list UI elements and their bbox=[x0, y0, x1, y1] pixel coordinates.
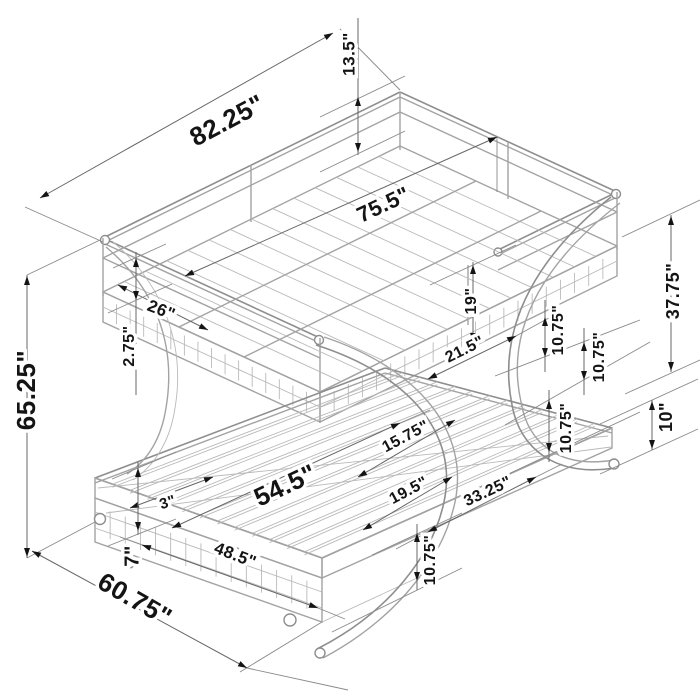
drawing-line bbox=[27, 240, 100, 275]
bed-frame-line bbox=[188, 250, 405, 350]
bed-frame-line bbox=[235, 408, 525, 530]
dim-base-rail-height-label: 7" bbox=[121, 545, 143, 567]
drawing-line bbox=[320, 131, 405, 172]
drawing-line bbox=[498, 197, 617, 255]
dim-side-rail-depth-label: 2.75" bbox=[121, 325, 138, 366]
dim-offset-a-label: 10.75" bbox=[550, 305, 567, 356]
drawing-line bbox=[108, 519, 176, 546]
bed-frame-line bbox=[315, 188, 532, 288]
curved-support-middle bbox=[316, 345, 447, 649]
drawing-line bbox=[600, 429, 698, 474]
bed-frame-line bbox=[273, 209, 490, 309]
drawing-line bbox=[625, 360, 700, 394]
drawing-line bbox=[120, 537, 142, 545]
bed-frame-line bbox=[305, 423, 595, 551]
bed-frame-line bbox=[112, 373, 402, 485]
drawing-line bbox=[495, 320, 640, 376]
dim-overall-height: 65.25" bbox=[11, 240, 100, 558]
dim-overall-depth: 60.75" bbox=[32, 551, 348, 690]
dim-head-rail-segment: 26" bbox=[118, 285, 208, 330]
top-bunk bbox=[101, 92, 621, 422]
dim-bottom-bed-length: 54.5" bbox=[172, 410, 430, 528]
bunk-bed-drawing: 82.25" 13.5" 75.5" 65.25" 26" bbox=[0, 0, 700, 700]
dim-overall-height-label: 65.25" bbox=[11, 350, 41, 430]
bed-frame-line bbox=[336, 177, 553, 277]
dim-offset-c-label: 10.75" bbox=[558, 403, 575, 454]
tube-end-cap bbox=[315, 648, 325, 658]
drawing-line bbox=[247, 668, 348, 690]
dim-base-rail-length-label: 48.5" bbox=[212, 538, 260, 571]
dim-offset-d-label: 10.75" bbox=[422, 535, 439, 586]
dim-guard-rail-height-label: 13.5" bbox=[339, 32, 358, 76]
dim-right-side-height-label: 37.75" bbox=[663, 263, 683, 320]
dim-bottom-bed-length-label: 54.5" bbox=[249, 458, 321, 513]
dimension-diagram: 82.25" 13.5" 75.5" 65.25" 26" bbox=[0, 0, 700, 700]
bed-frame-line bbox=[112, 376, 402, 488]
drawing-line bbox=[622, 200, 700, 237]
bed-frame-line bbox=[167, 261, 384, 361]
dim-top-sleep-length-label: 75.5" bbox=[353, 181, 414, 227]
tube-end-cap bbox=[95, 514, 106, 525]
drawing-line bbox=[322, 572, 430, 622]
dim-deck-to-floor-label: 10" bbox=[656, 402, 676, 432]
drawing-line bbox=[40, 33, 333, 198]
dim-gap-3-label: 3" bbox=[157, 492, 178, 513]
bed-frame-line bbox=[252, 219, 469, 319]
tube-end-cap bbox=[101, 236, 110, 245]
drawing-line bbox=[332, 568, 462, 632]
dim-right-side-height: 37.75" bbox=[622, 200, 700, 394]
bed-frame-line bbox=[358, 167, 575, 267]
dim-head-rail-segment-label: 26" bbox=[145, 296, 179, 324]
drawing-line bbox=[536, 464, 562, 477]
drawing-line bbox=[240, 622, 322, 672]
drawing-line bbox=[25, 207, 103, 242]
tube-end-cap bbox=[612, 190, 621, 199]
bed-frame-line bbox=[179, 181, 476, 327]
bottom-support-rail bbox=[106, 447, 611, 513]
drawing-line bbox=[600, 379, 698, 424]
curved-supports bbox=[106, 197, 620, 658]
bed-frame-line bbox=[305, 426, 595, 554]
dim-overall-length-label: 82.25" bbox=[184, 88, 269, 152]
dim-under-rail-clearance-label: 19" bbox=[463, 288, 480, 315]
bed-frame-line bbox=[209, 240, 426, 340]
bed-frame-line bbox=[230, 229, 447, 329]
tube-end-cap bbox=[315, 336, 324, 345]
dim-offset-b-label: 10.75" bbox=[591, 332, 608, 383]
drawing-line bbox=[27, 522, 95, 558]
drawing-line bbox=[505, 342, 650, 425]
caster-wheel bbox=[284, 614, 296, 626]
dim-overall-depth-label: 60.75" bbox=[93, 566, 178, 632]
